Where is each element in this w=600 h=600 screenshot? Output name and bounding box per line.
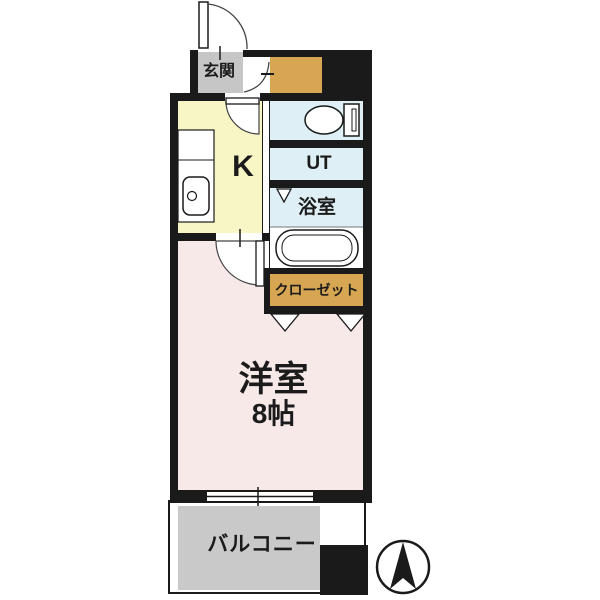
entrance-kitchen-door-arc (226, 101, 259, 134)
closet-door-mark (271, 314, 299, 331)
entrance-step-curve (244, 62, 269, 92)
balcony-label: バルコニー (188, 534, 336, 556)
entrance-door-arc (208, 4, 247, 49)
entrance-label: 玄関 (194, 64, 244, 81)
kitchen-label: K (221, 151, 265, 183)
mainroom-door-leaf (256, 241, 264, 286)
main-room-size-label: 8帖 (201, 399, 346, 428)
toilet-icon (305, 106, 343, 134)
entrance-kitchen-door-leaf (226, 98, 259, 104)
main-room-label: 洋室 (201, 362, 346, 399)
floor-plan-canvas: 玄関 K UT 浴室 クローゼット 洋室 8帖 バルコニー (0, 0, 600, 600)
mainroom-door-arc (216, 241, 260, 285)
sink-drain (188, 192, 197, 201)
utility-label: UT (288, 154, 350, 174)
bathroom-label: 浴室 (278, 198, 356, 218)
closet-door-mark (337, 314, 365, 331)
entrance-door-leaf (199, 2, 208, 48)
fixtures-overlay (0, 0, 600, 600)
closet-label: クローゼット (268, 283, 365, 298)
